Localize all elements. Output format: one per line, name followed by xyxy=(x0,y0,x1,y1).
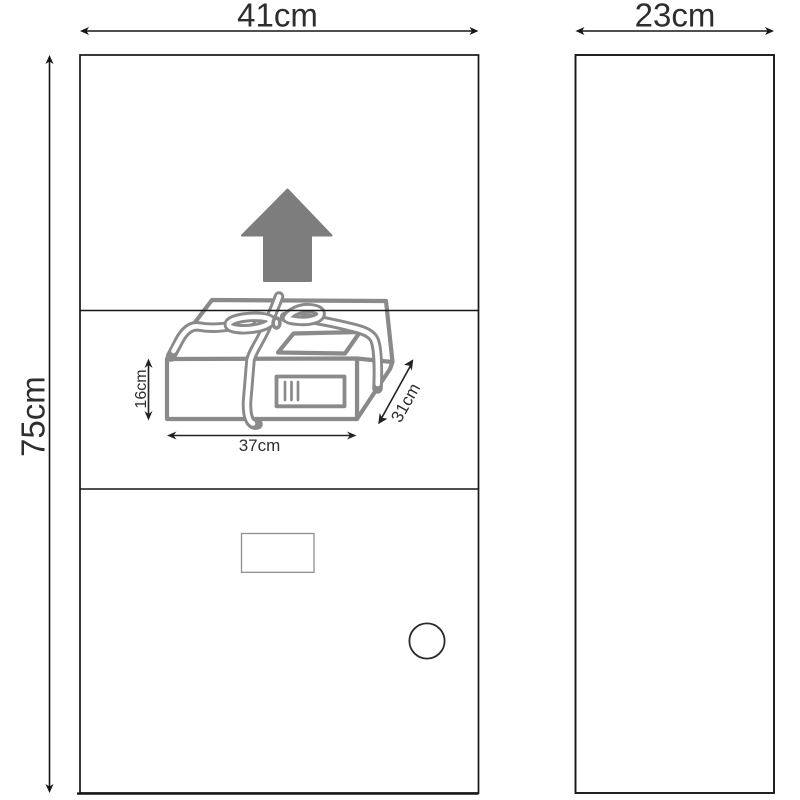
svg-text:75cm: 75cm xyxy=(15,376,52,457)
svg-text:23cm: 23cm xyxy=(635,0,716,34)
svg-text:16cm: 16cm xyxy=(133,369,150,408)
svg-text:37cm: 37cm xyxy=(239,436,281,455)
svg-text:31cm: 31cm xyxy=(387,380,424,426)
svg-text:41cm: 41cm xyxy=(237,0,318,34)
